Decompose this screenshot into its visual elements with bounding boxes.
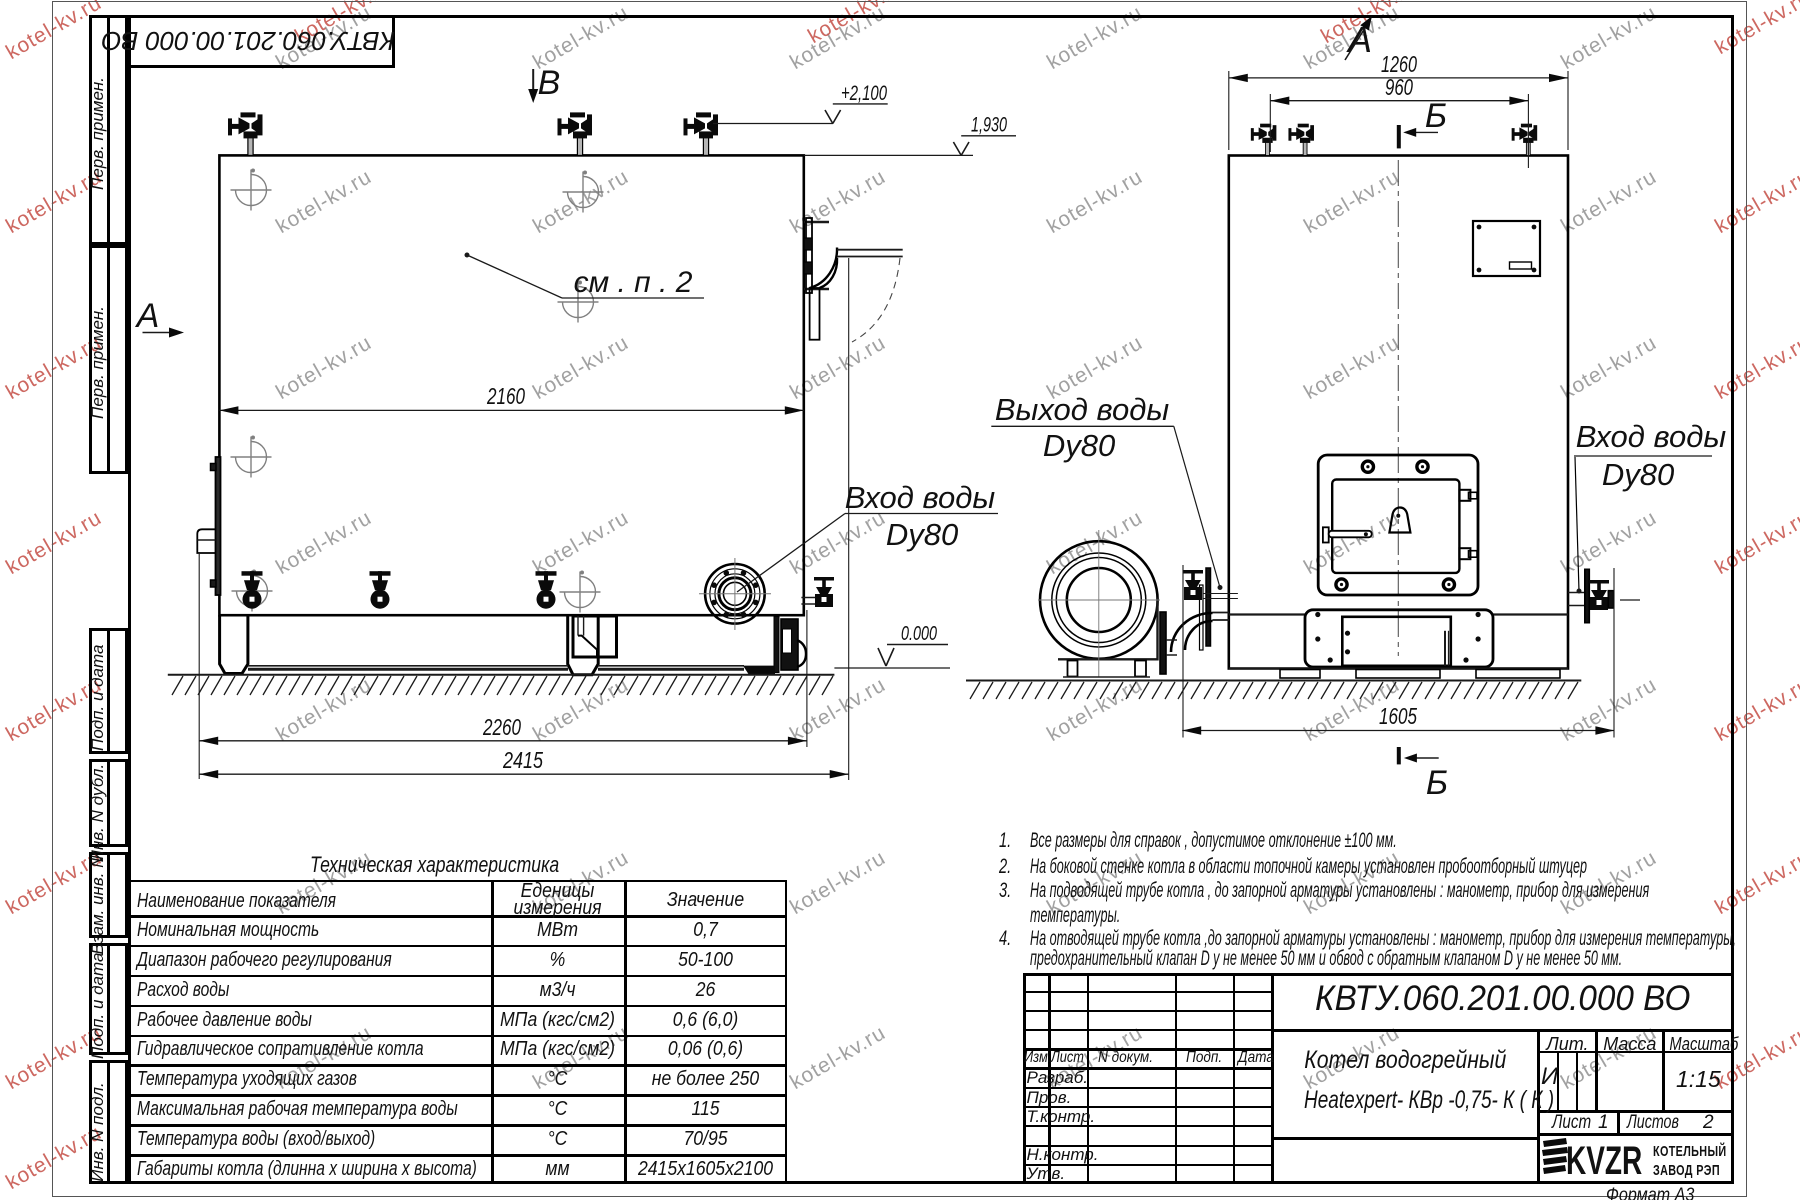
svg-text:Dy80: Dy80: [1602, 457, 1674, 492]
svg-text:см . п . 2: см . п . 2: [574, 266, 693, 299]
svg-text:2415: 2415: [502, 747, 543, 773]
svg-text:960: 960: [1385, 74, 1413, 100]
svg-text:+2,100: +2,100: [841, 82, 887, 105]
svg-text:Б: Б: [1425, 97, 1447, 135]
svg-text:Dy80: Dy80: [1043, 428, 1115, 463]
svg-text:Вход воды: Вход воды: [1576, 419, 1727, 454]
svg-text:1605: 1605: [1379, 703, 1417, 729]
svg-text:2160: 2160: [486, 383, 525, 409]
svg-text:Выход воды: Выход воды: [995, 392, 1170, 427]
svg-text:А: А: [135, 297, 160, 335]
svg-text:0.000: 0.000: [901, 623, 937, 645]
svg-text:2260: 2260: [482, 714, 521, 740]
svg-text:1,930: 1,930: [971, 114, 1007, 137]
svg-text:В: В: [538, 64, 561, 102]
svg-text:Вход воды: Вход воды: [845, 480, 996, 515]
svg-text:Dy80: Dy80: [886, 517, 958, 552]
svg-text:Б: Б: [1426, 764, 1448, 802]
